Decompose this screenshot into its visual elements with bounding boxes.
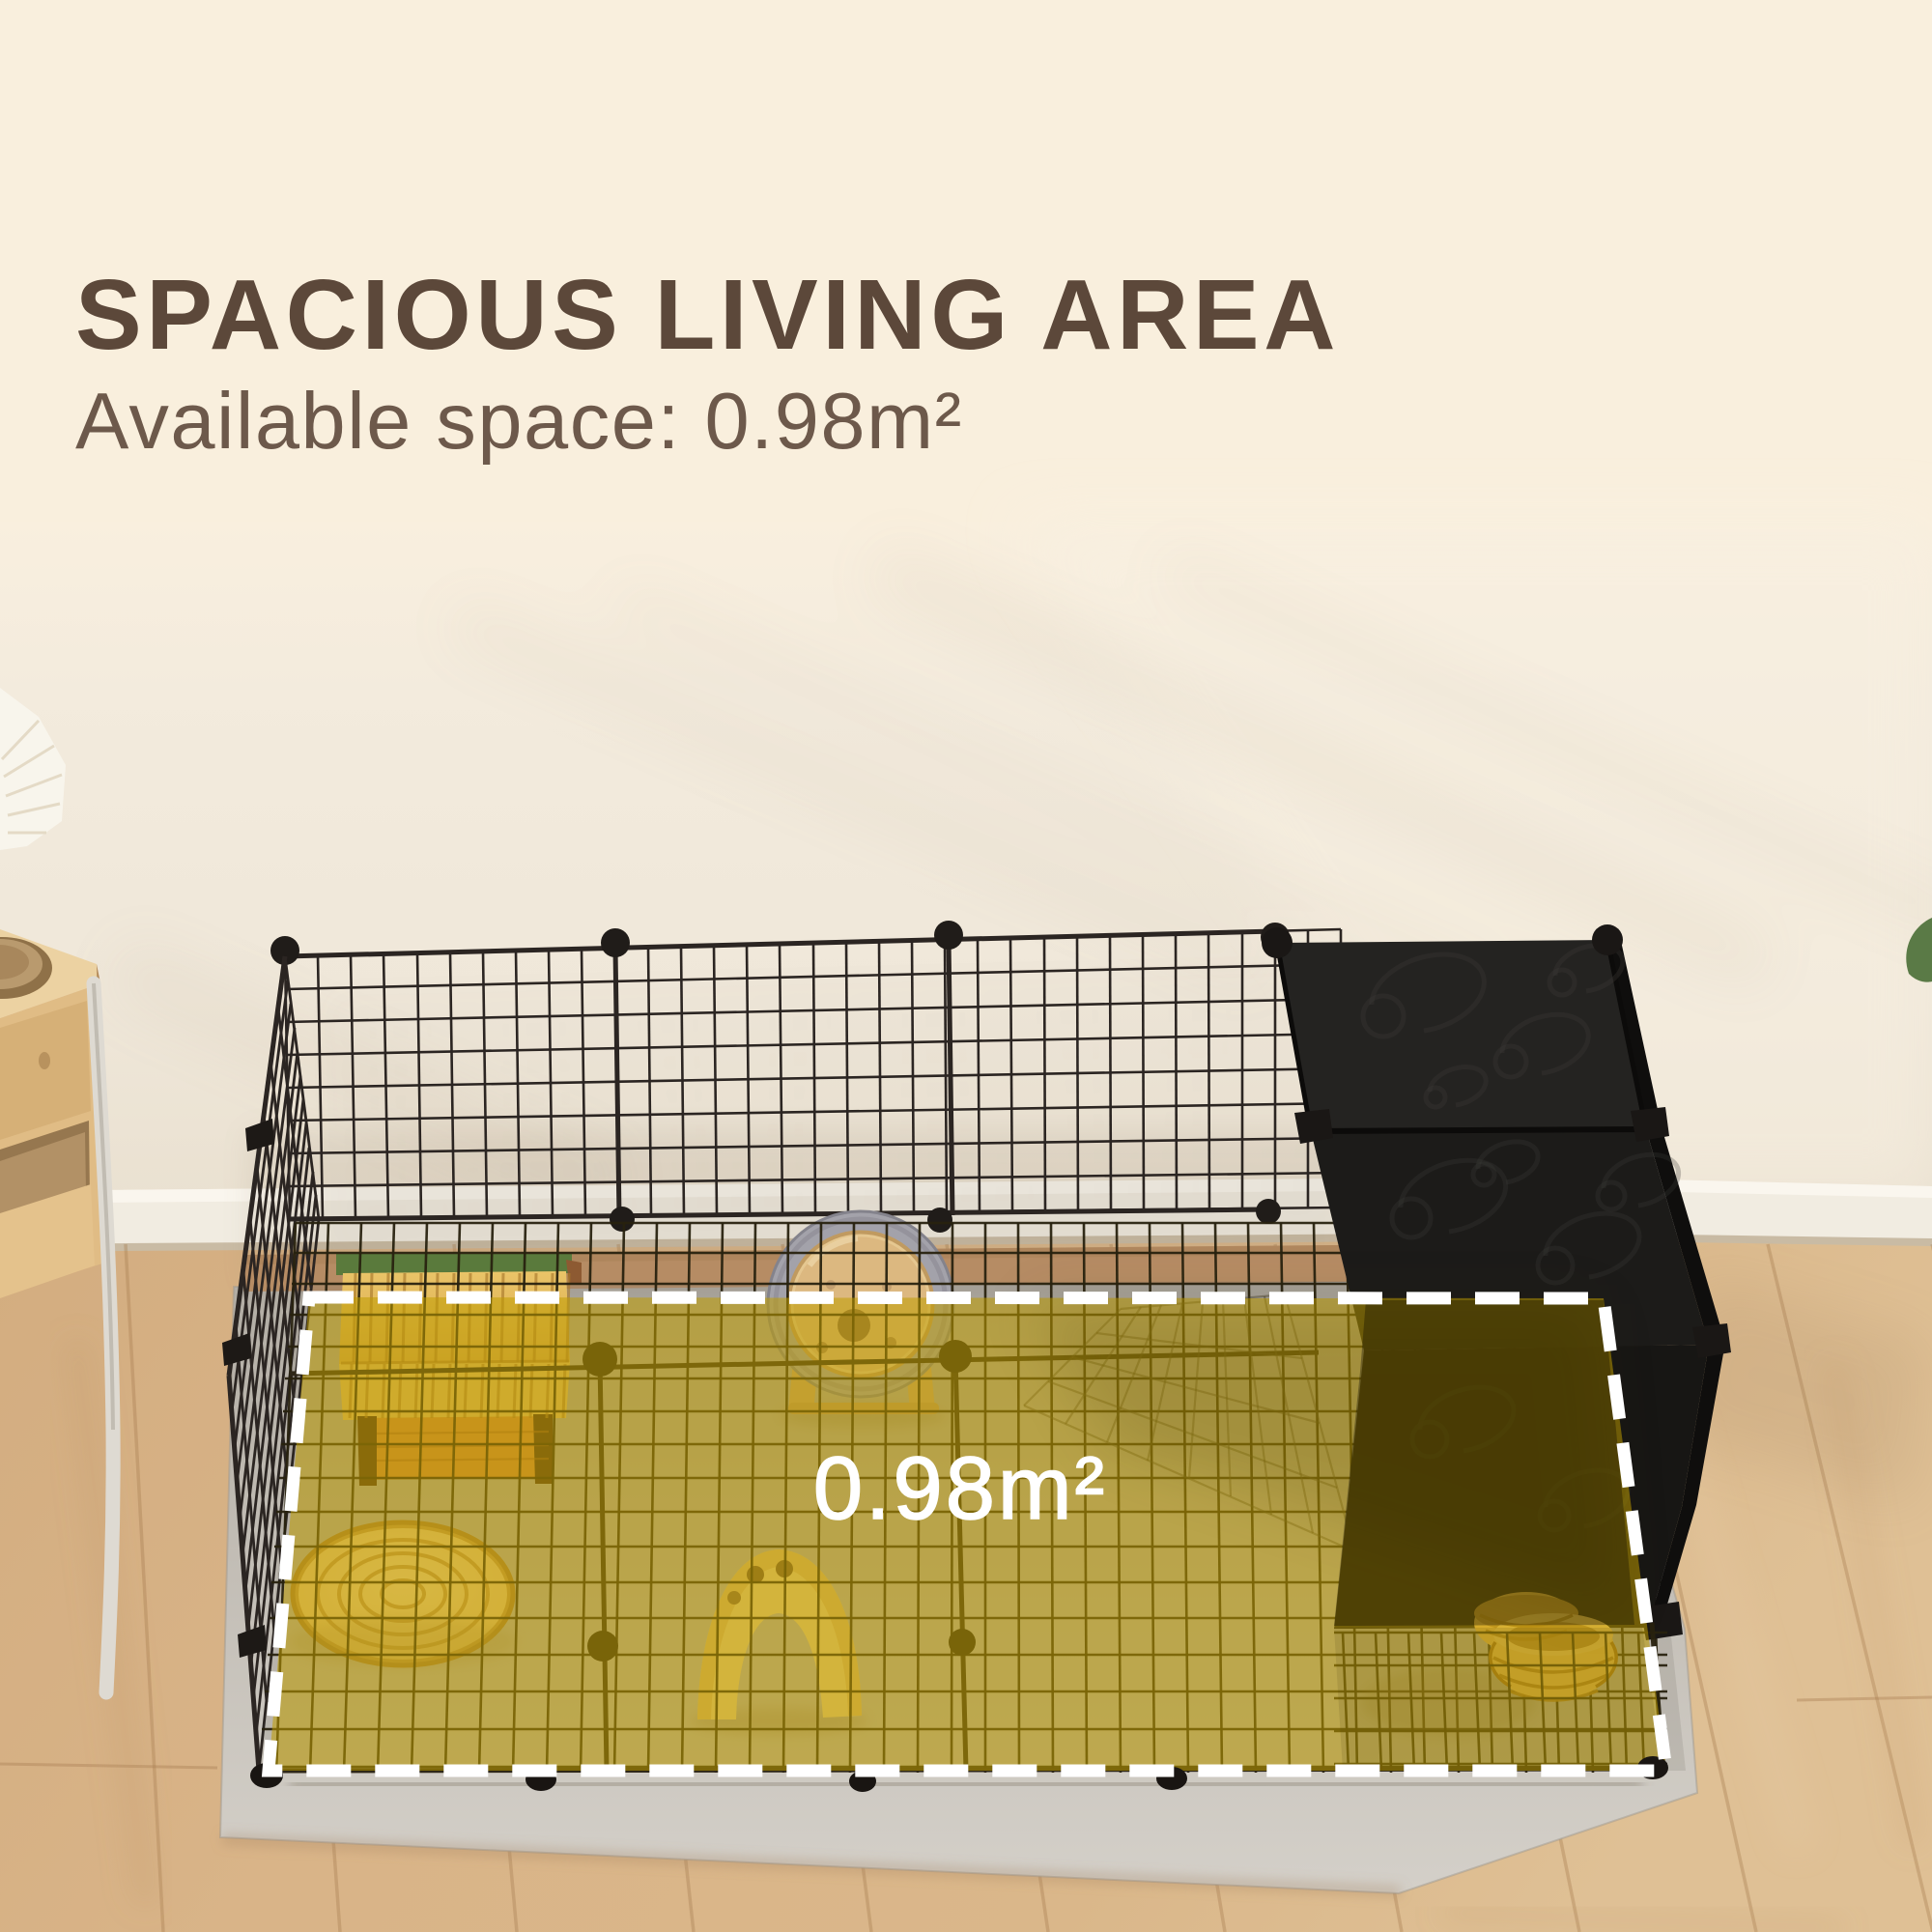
svg-text:SPACIOUS LIVING AREA: SPACIOUS LIVING AREA [75, 259, 1340, 370]
svg-text:Available space: 0.98m²: Available space: 0.98m² [75, 376, 963, 466]
svg-text:0.98m²: 0.98m² [813, 1439, 1107, 1538]
